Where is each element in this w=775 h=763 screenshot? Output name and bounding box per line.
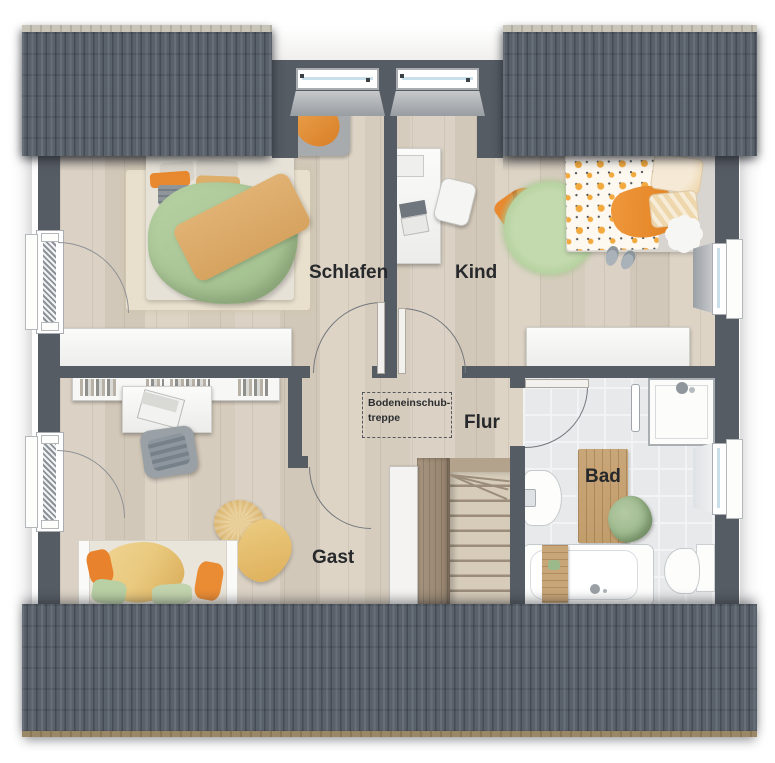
pillow-green-gast-2 [151,583,192,607]
stair-side-wall-wood [417,458,450,605]
towel-rail [631,384,640,432]
attic-stairs-label-line1: Bodeneinschub- [368,397,450,409]
wall-left-mid [38,330,60,434]
attic-stairs-annotation-box: Bodeneinschub- treppe [362,392,452,438]
window-kind-inner-sill [693,243,712,313]
roof-top-left-tiles [22,32,272,156]
roof-top-left [22,25,272,156]
radiator-gast-cap-top [41,435,59,444]
wall-bad-left-bottom [510,446,525,605]
window-bad-outer-sill [726,439,743,519]
radiator-gast [43,442,56,520]
roof-top-left-ridge [22,25,272,32]
window-schlafen-outer-sill [25,234,38,330]
wall-right-bottom [715,513,739,605]
roof-bottom-tiles [22,604,757,731]
radiator-schlafen-cap-top [41,233,59,242]
toilet-bowl [664,548,700,594]
caddy-soap [548,560,560,570]
bath-caddy-wood [542,545,568,603]
roof-bottom [22,604,757,737]
door-leaf-bad [525,379,589,388]
window-bad-inner-sill [693,443,712,513]
pillow-kind-2 [648,190,699,229]
window-kind-glass [717,248,720,308]
stair-top-landing [450,458,510,472]
wall-divider-schlafen-kind [384,88,397,372]
radiator-gast-cap-bottom [41,520,59,529]
attic-stairs-label-line2: treppe [368,412,400,424]
roof-top-right-ridge [503,25,757,32]
flower-side-table [676,226,692,242]
wall-schlafen-bottom [38,366,310,378]
dormer-sill-1 [290,91,385,116]
radiator-schlafen-cap-bottom [41,322,59,331]
books-group-4 [238,379,268,396]
window-gast-outer-sill [25,436,38,528]
radiator-schlafen [43,240,56,322]
sideboard-schlafen [58,328,292,370]
dormer-window-1-latch [300,74,304,78]
dormer-window-1-glass [302,77,373,80]
door-panel-stairs [389,466,418,607]
dormer-sill-2 [390,91,485,116]
wall-left-bottom [38,530,60,608]
wall-gast-flur [288,366,302,468]
wall-bad-left-top [510,372,525,388]
stair-treads [450,472,510,605]
pillow-kind-1 [650,153,705,196]
wall-right-mid [715,310,739,378]
room-label-schlafen: Schlafen [309,262,388,284]
books-group-1 [80,379,116,396]
shower-head-icon [676,382,688,394]
room-label-flur: Flur [464,412,500,434]
door-leaf-schlafen [377,302,385,374]
roof-bottom-eave [22,731,757,737]
dresser-kind [526,327,690,369]
dormer-window-2-latch [400,74,404,78]
window-bad-glass [717,448,720,508]
wall-kind-bad-bottom [462,366,715,378]
door-leaf-kind [398,308,406,374]
sofa-rail-right [226,540,238,607]
window-kind-outer-sill [726,239,743,319]
floor-plan: Schlafen Kind Flur Gast Bad Bodeneinschu… [0,0,775,763]
wall-gast-door-jamb [288,456,308,468]
wall-right-top [715,155,739,245]
tub-faucet [590,584,600,594]
dormer-window-2-glass [402,77,473,80]
roof-top-right [503,25,757,156]
room-label-bad: Bad [585,466,621,488]
pillow-green-gast-1 [90,578,127,606]
room-label-gast: Gast [312,547,354,569]
wall-right-bad-upper [715,378,739,443]
room-label-kind: Kind [455,262,497,284]
dormer-exterior [272,28,503,62]
roof-top-right-tiles [503,32,757,156]
